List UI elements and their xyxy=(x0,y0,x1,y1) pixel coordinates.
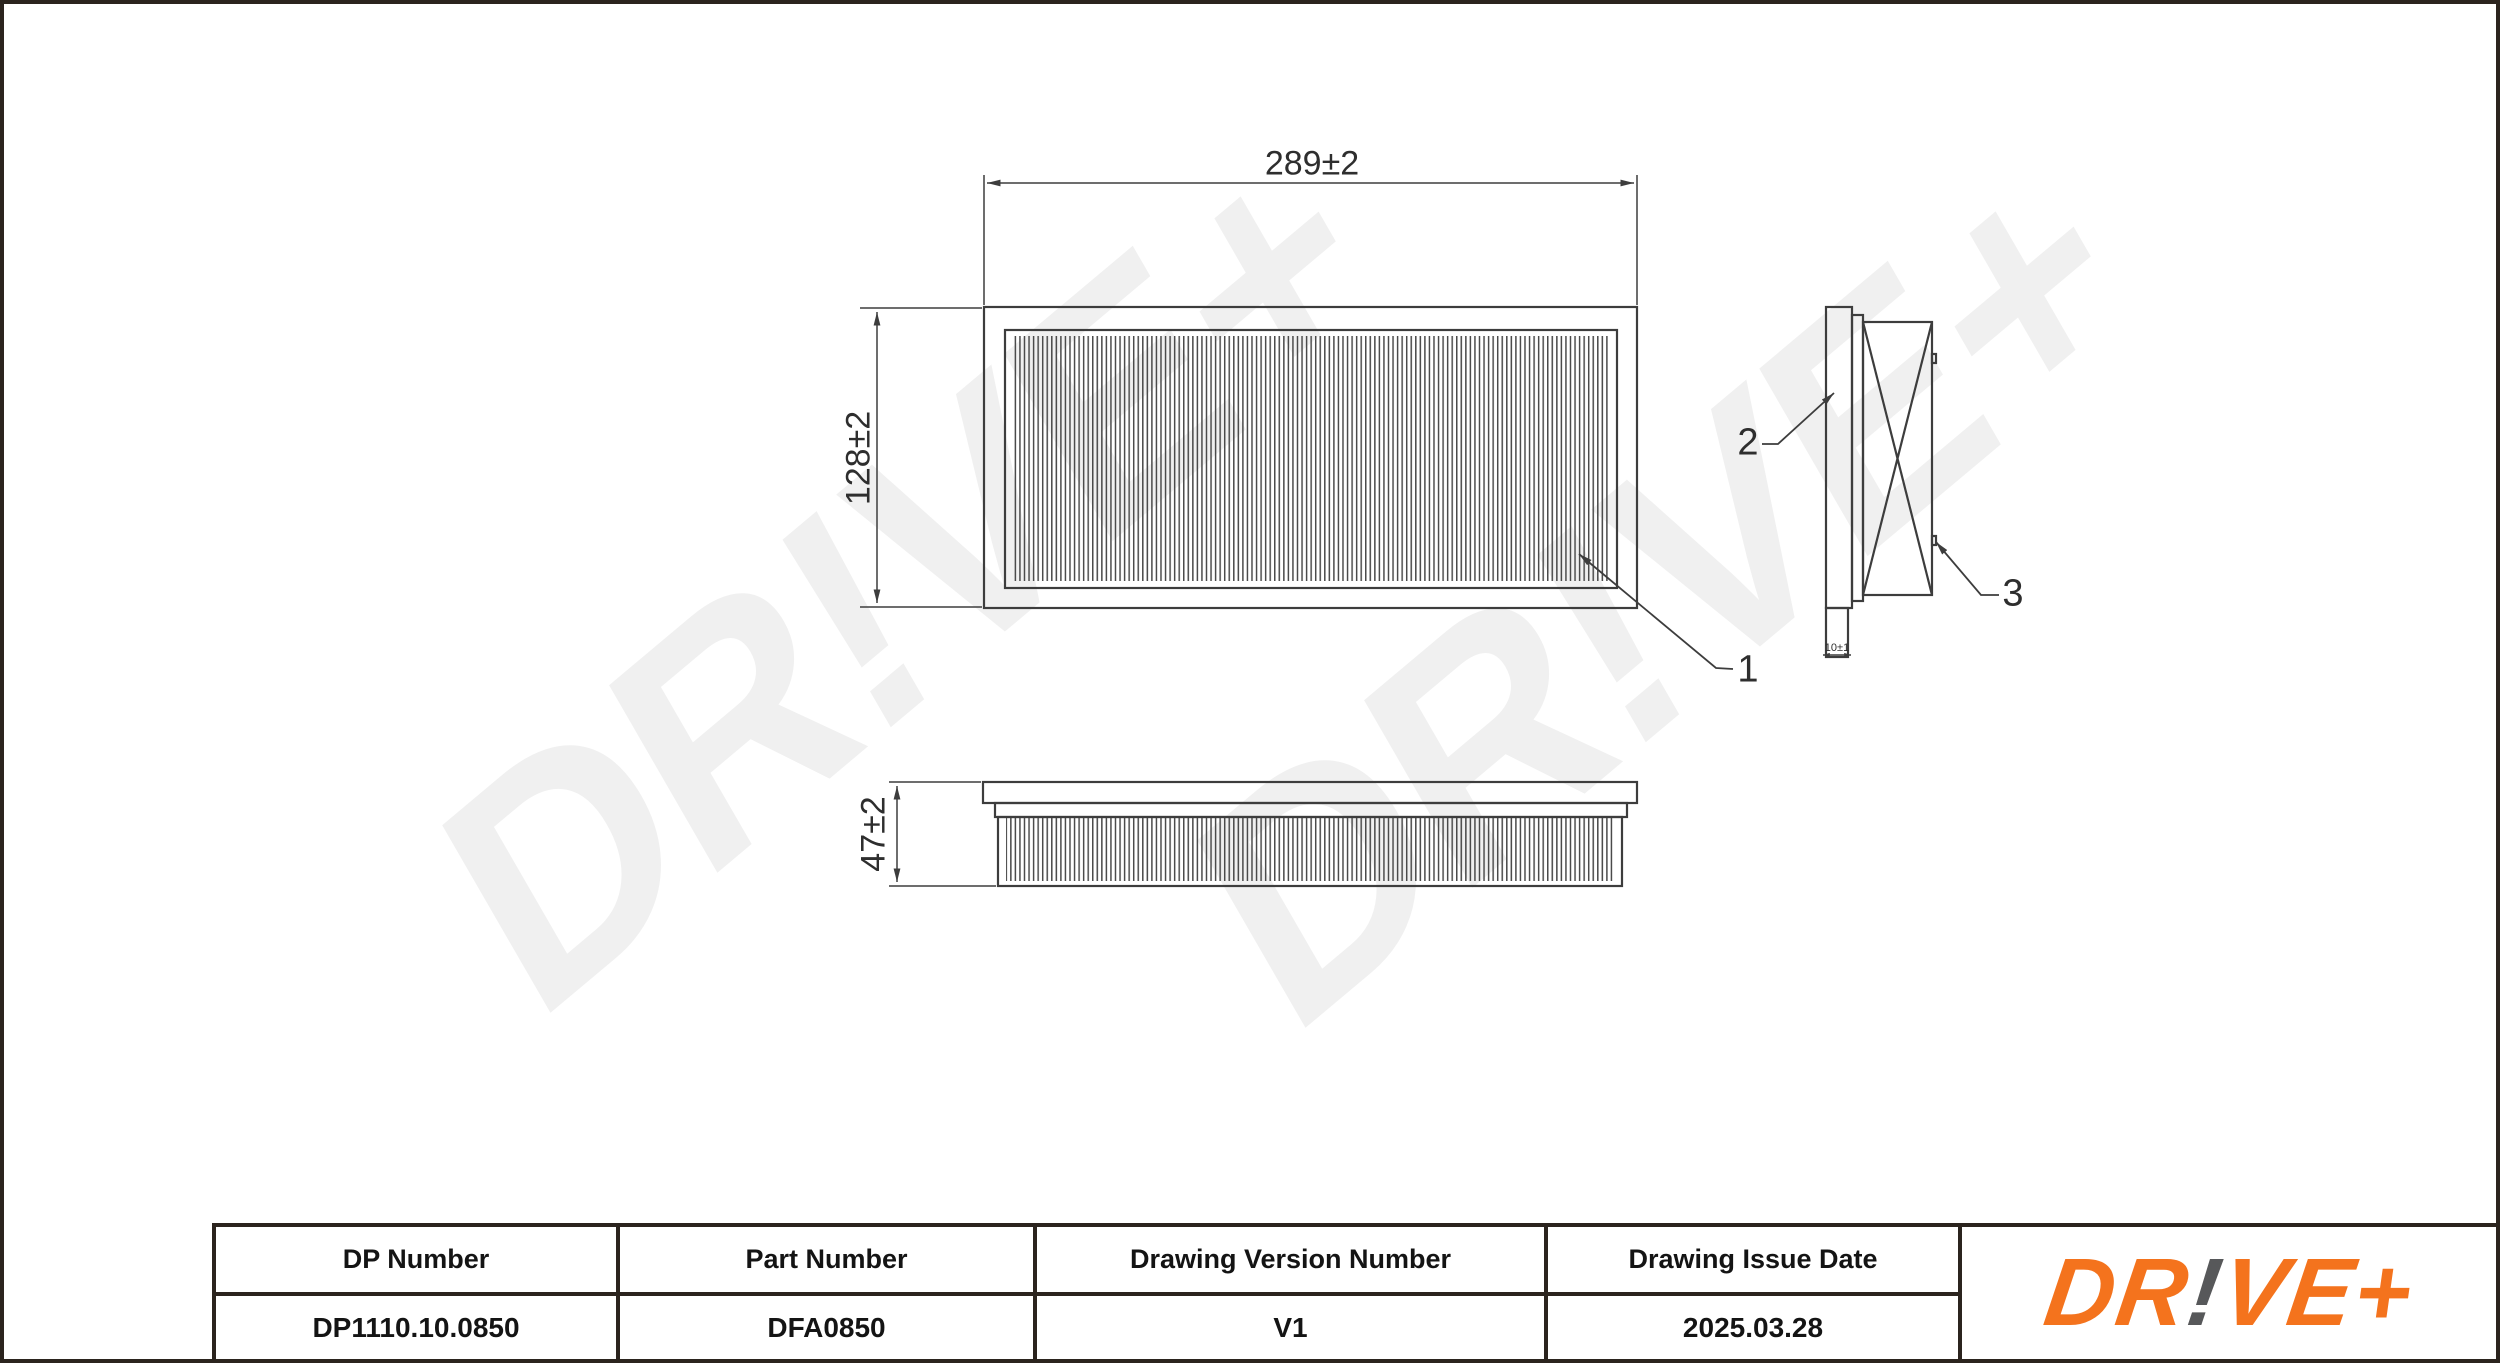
side-seal-flange xyxy=(1826,307,1852,608)
callout-leaders xyxy=(1579,393,1999,669)
dp-number-value: DP1110.10.0850 xyxy=(216,1296,616,1359)
front-media-pleats xyxy=(1006,818,1613,881)
title-block-column-dp-number: DP Number DP1110.10.0850 xyxy=(216,1227,620,1359)
leader-3 xyxy=(1936,542,1999,595)
logo-segment-dr: DR xyxy=(2038,1239,2196,1346)
part-number-header: Part Number xyxy=(620,1227,1033,1296)
technical-drawing-canvas xyxy=(0,0,2500,1363)
dp-number-header: DP Number xyxy=(216,1227,616,1296)
side-frame-step xyxy=(1852,315,1863,601)
callout-3-label: 3 xyxy=(2002,573,2023,616)
callout-2-label: 2 xyxy=(1737,422,1758,465)
leader-2 xyxy=(1762,393,1834,444)
drawing-page: DR!VE+ DR!VE+ xyxy=(0,0,2500,1363)
side-clip-upper xyxy=(1932,354,1936,363)
logo-cell: DR!VE+ xyxy=(1962,1227,2496,1359)
dimension-height-label: 128±2 xyxy=(840,411,879,505)
dimension-depth-label: 47±2 xyxy=(855,796,894,871)
drawing-version-header: Drawing Version Number xyxy=(1037,1227,1544,1296)
drawing-version-value: V1 xyxy=(1037,1296,1544,1359)
dimension-width-label: 289±2 xyxy=(1265,145,1359,184)
issue-date-value: 2025.03.28 xyxy=(1548,1296,1958,1359)
filter-pleated-media xyxy=(1012,336,1610,581)
title-block-column-part-number: Part Number DFA0850 xyxy=(620,1227,1037,1359)
logo-segment-ve-plus: VE+ xyxy=(2215,1239,2420,1346)
callout-1-label: 1 xyxy=(1737,649,1758,692)
front-frame-step xyxy=(995,803,1627,817)
front-view xyxy=(983,782,1637,886)
side-clip-lower xyxy=(1932,536,1936,545)
drive-plus-logo: DR!VE+ xyxy=(2039,1245,2419,1341)
top-view xyxy=(984,307,1637,608)
issue-date-header: Drawing Issue Date xyxy=(1548,1227,1958,1296)
part-number-value: DFA0850 xyxy=(620,1296,1033,1359)
dimension-tab-label: 10±1 xyxy=(1825,642,1849,654)
title-block: DP Number DP1110.10.0850 Part Number DFA… xyxy=(212,1223,2496,1359)
front-flange xyxy=(983,782,1637,803)
title-block-column-version: Drawing Version Number V1 xyxy=(1037,1227,1548,1359)
side-view xyxy=(1826,307,1936,657)
title-block-column-issue-date: Drawing Issue Date 2025.03.28 xyxy=(1548,1227,1962,1359)
